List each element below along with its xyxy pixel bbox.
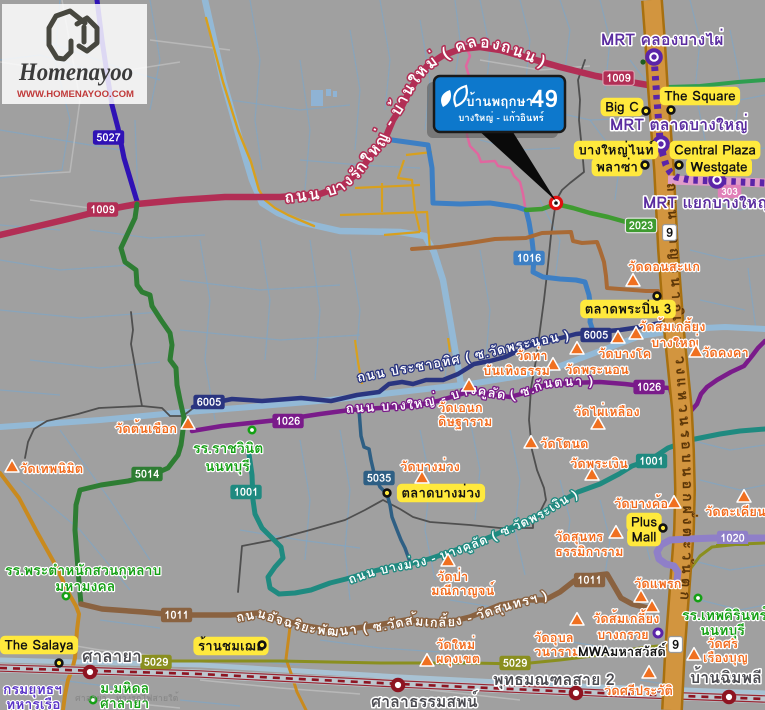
- svg-text:Homenayoo: Homenayoo: [18, 59, 133, 86]
- svg-text:WWW.HOMENAYOO.COM: WWW.HOMENAYOO.COM: [17, 89, 134, 100]
